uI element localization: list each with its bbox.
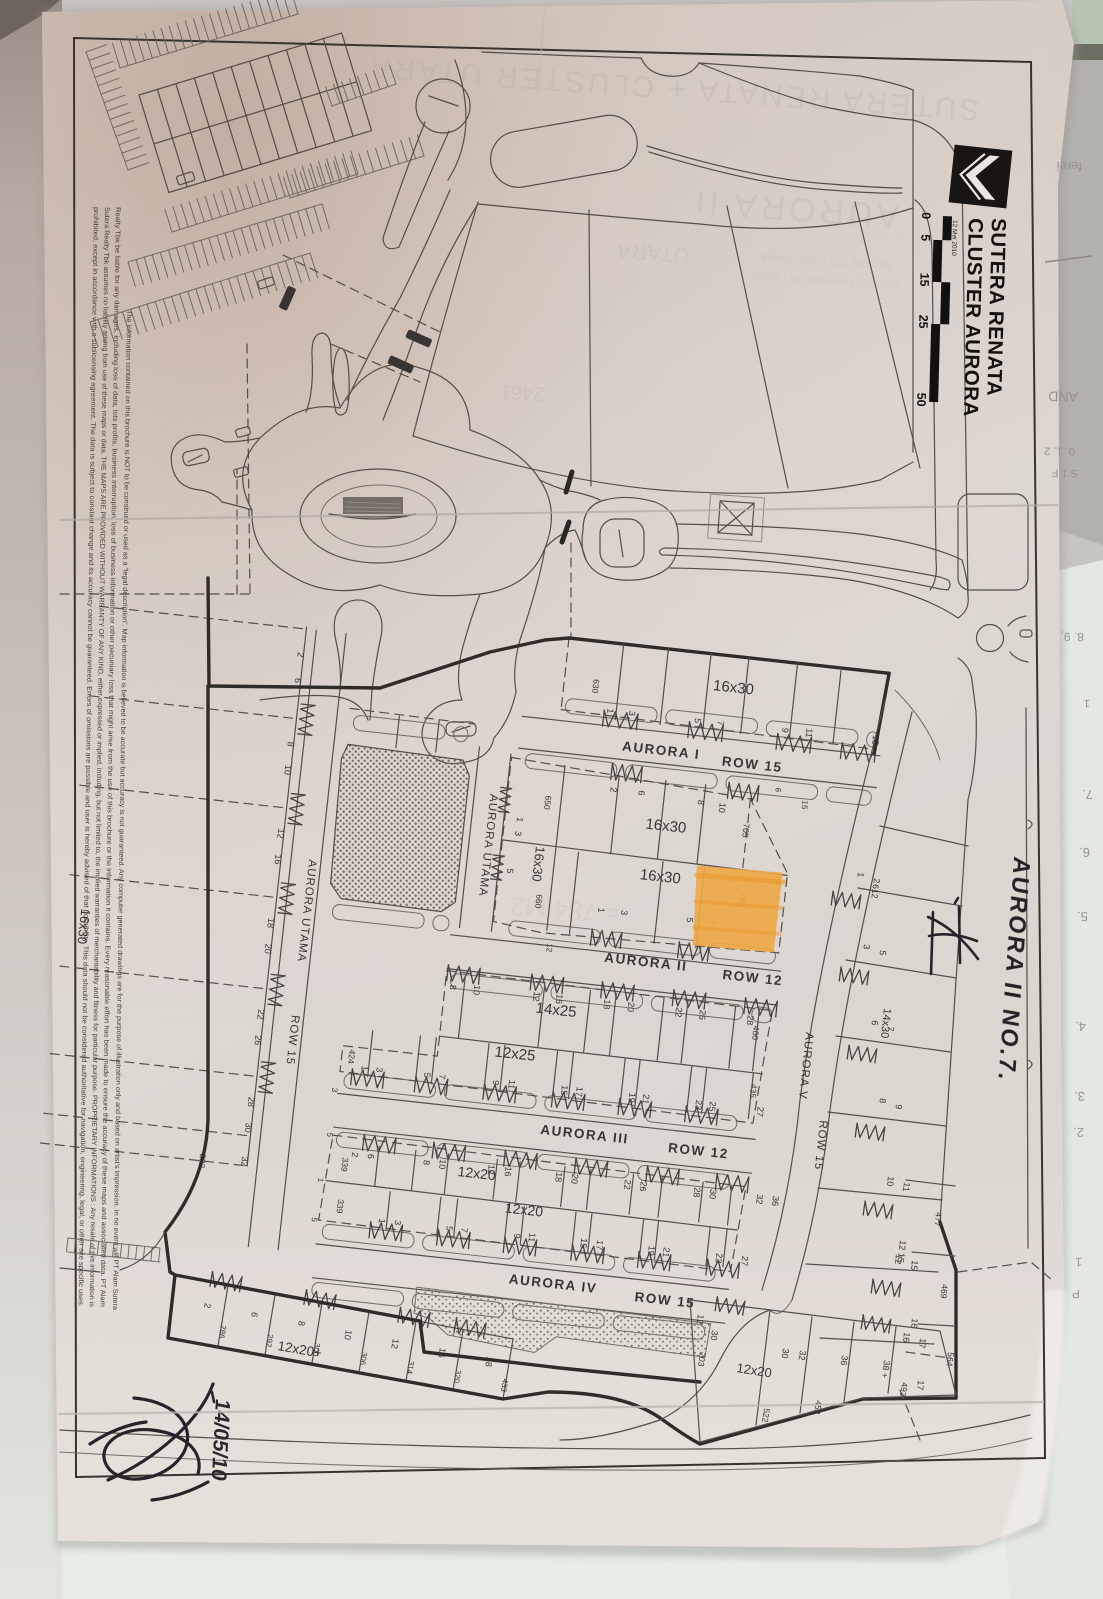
svg-text:650: 650: [542, 795, 554, 810]
svg-text:30: 30: [243, 1122, 254, 1133]
svg-text:P: P: [1072, 1287, 1080, 1301]
svg-text:10: 10: [282, 764, 293, 775]
svg-text:36: 36: [770, 1196, 781, 1207]
svg-text:2461: 2461: [499, 380, 545, 405]
svg-text:16: 16: [503, 1166, 514, 1177]
svg-text:25: 25: [916, 315, 930, 329]
svg-text:22: 22: [622, 1179, 633, 1190]
svg-text:0. 1. 2: 0. 1. 2: [1044, 444, 1075, 457]
svg-text:30: 30: [709, 1330, 720, 1341]
svg-text:16: 16: [901, 1332, 912, 1343]
svg-text:2: 2: [871, 878, 881, 884]
svg-text:5: 5: [918, 234, 932, 241]
svg-text:20: 20: [625, 1002, 636, 1013]
svg-text:10: 10: [471, 985, 482, 996]
svg-text:12: 12: [389, 1338, 401, 1350]
svg-text:28: 28: [691, 1187, 702, 1198]
svg-text:18: 18: [265, 918, 276, 929]
svg-text:630: 630: [590, 679, 602, 694]
svg-text:7.: 7.: [1082, 787, 1093, 802]
svg-text:30: 30: [707, 1189, 718, 1200]
svg-text:469: 469: [939, 1284, 950, 1299]
svg-text:20: 20: [569, 1173, 580, 1184]
svg-text:10: 10: [342, 1329, 354, 1341]
svg-text:9: 9: [893, 1104, 903, 1110]
svg-text:16: 16: [272, 854, 283, 865]
svg-text:18: 18: [553, 1172, 564, 1183]
svg-text:UTARA: UTARA: [616, 238, 691, 268]
svg-text:3: 3: [861, 944, 871, 950]
svg-text:11: 11: [804, 728, 815, 738]
svg-text:22: 22: [255, 1009, 266, 1020]
svg-text:1: 1: [1075, 1255, 1082, 1269]
svg-text:612: 612: [870, 884, 881, 899]
svg-text:10: 10: [885, 1176, 896, 1187]
svg-text:22: 22: [673, 1007, 684, 1018]
svg-text:S 1 F: S 1 F: [1051, 467, 1078, 479]
svg-text:2.: 2.: [1073, 1125, 1084, 1140]
svg-text:36: 36: [839, 1355, 850, 1366]
svg-text:8. 9,: 8. 9,: [1060, 630, 1084, 644]
svg-text:11: 11: [901, 1182, 912, 1192]
svg-text:ferei: ferei: [1056, 159, 1082, 174]
svg-text:14/05/10: 14/05/10: [207, 1397, 234, 1483]
svg-text:50: 50: [914, 392, 928, 406]
svg-text:28: 28: [246, 1096, 257, 1107]
svg-text:6.: 6.: [1079, 845, 1090, 860]
svg-text:12: 12: [544, 943, 554, 953]
svg-text:8: 8: [877, 1098, 887, 1104]
svg-text:4.: 4.: [1075, 1019, 1086, 1034]
svg-text:477: 477: [933, 1212, 944, 1227]
svg-text:3.: 3.: [1074, 1089, 1085, 1104]
svg-text:AND: AND: [1048, 388, 1078, 405]
svg-text:32: 32: [797, 1350, 808, 1361]
svg-text:452: 452: [812, 1400, 824, 1416]
svg-text:10: 10: [437, 1159, 448, 1170]
svg-text:12: 12: [695, 1314, 706, 1325]
svg-text:18: 18: [601, 999, 612, 1010]
svg-text:30: 30: [780, 1348, 791, 1359]
svg-text:203: 203: [696, 1352, 708, 1368]
svg-text:12: 12: [275, 828, 286, 839]
svg-text:705: 705: [740, 823, 752, 838]
svg-text:339: 339: [335, 1199, 347, 1214]
svg-text:339: 339: [339, 1157, 351, 1172]
svg-text:1: 1: [855, 872, 865, 878]
svg-text:15: 15: [800, 800, 810, 810]
svg-text:26: 26: [252, 1035, 263, 1046]
svg-text:15: 15: [909, 1260, 920, 1271]
svg-text:27: 27: [755, 1106, 766, 1117]
svg-text:5.: 5.: [1077, 909, 1088, 924]
svg-text:435: 435: [748, 1083, 760, 1098]
svg-text:20: 20: [263, 943, 274, 954]
svg-text:0: 0: [919, 212, 933, 219]
svg-text:32: 32: [754, 1194, 765, 1205]
svg-text:17: 17: [915, 1380, 926, 1391]
svg-text:27: 27: [739, 1256, 750, 1267]
svg-text:660: 660: [533, 894, 545, 909]
svg-text:6: 6: [869, 1020, 879, 1026]
svg-text:522: 522: [760, 1408, 772, 1424]
svg-text:1: 1: [1084, 697, 1090, 709]
svg-text:28: 28: [745, 1015, 756, 1026]
svg-text:10: 10: [717, 802, 728, 813]
svg-text:5: 5: [877, 950, 887, 956]
svg-text:26: 26: [638, 1181, 649, 1192]
svg-text:26: 26: [697, 1009, 708, 1020]
svg-text:424: 424: [346, 1049, 358, 1064]
svg-text:15: 15: [917, 273, 931, 287]
